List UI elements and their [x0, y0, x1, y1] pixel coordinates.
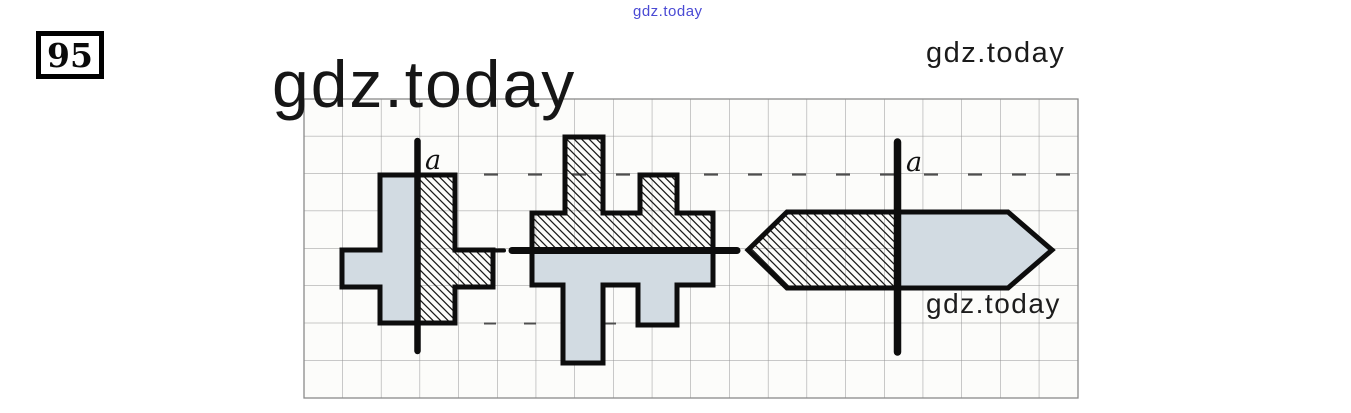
- figure-cross-axis-label: a: [425, 145, 441, 176]
- site-link[interactable]: gdz.today: [633, 3, 703, 20]
- watermark-bottom-right: gdz.today: [926, 288, 1061, 320]
- watermark-top-right: gdz.today: [926, 37, 1065, 70]
- screenshot-root: a a gdz.today 95 gdz.today gdz.today gdz…: [0, 0, 1351, 413]
- geometry-diagram: a a: [0, 0, 1351, 413]
- figure-arrow-axis-label: a: [906, 147, 922, 178]
- exercise-number-badge: 95: [36, 31, 104, 79]
- exercise-number: 95: [47, 39, 93, 72]
- watermark-big: gdz.today: [272, 46, 576, 122]
